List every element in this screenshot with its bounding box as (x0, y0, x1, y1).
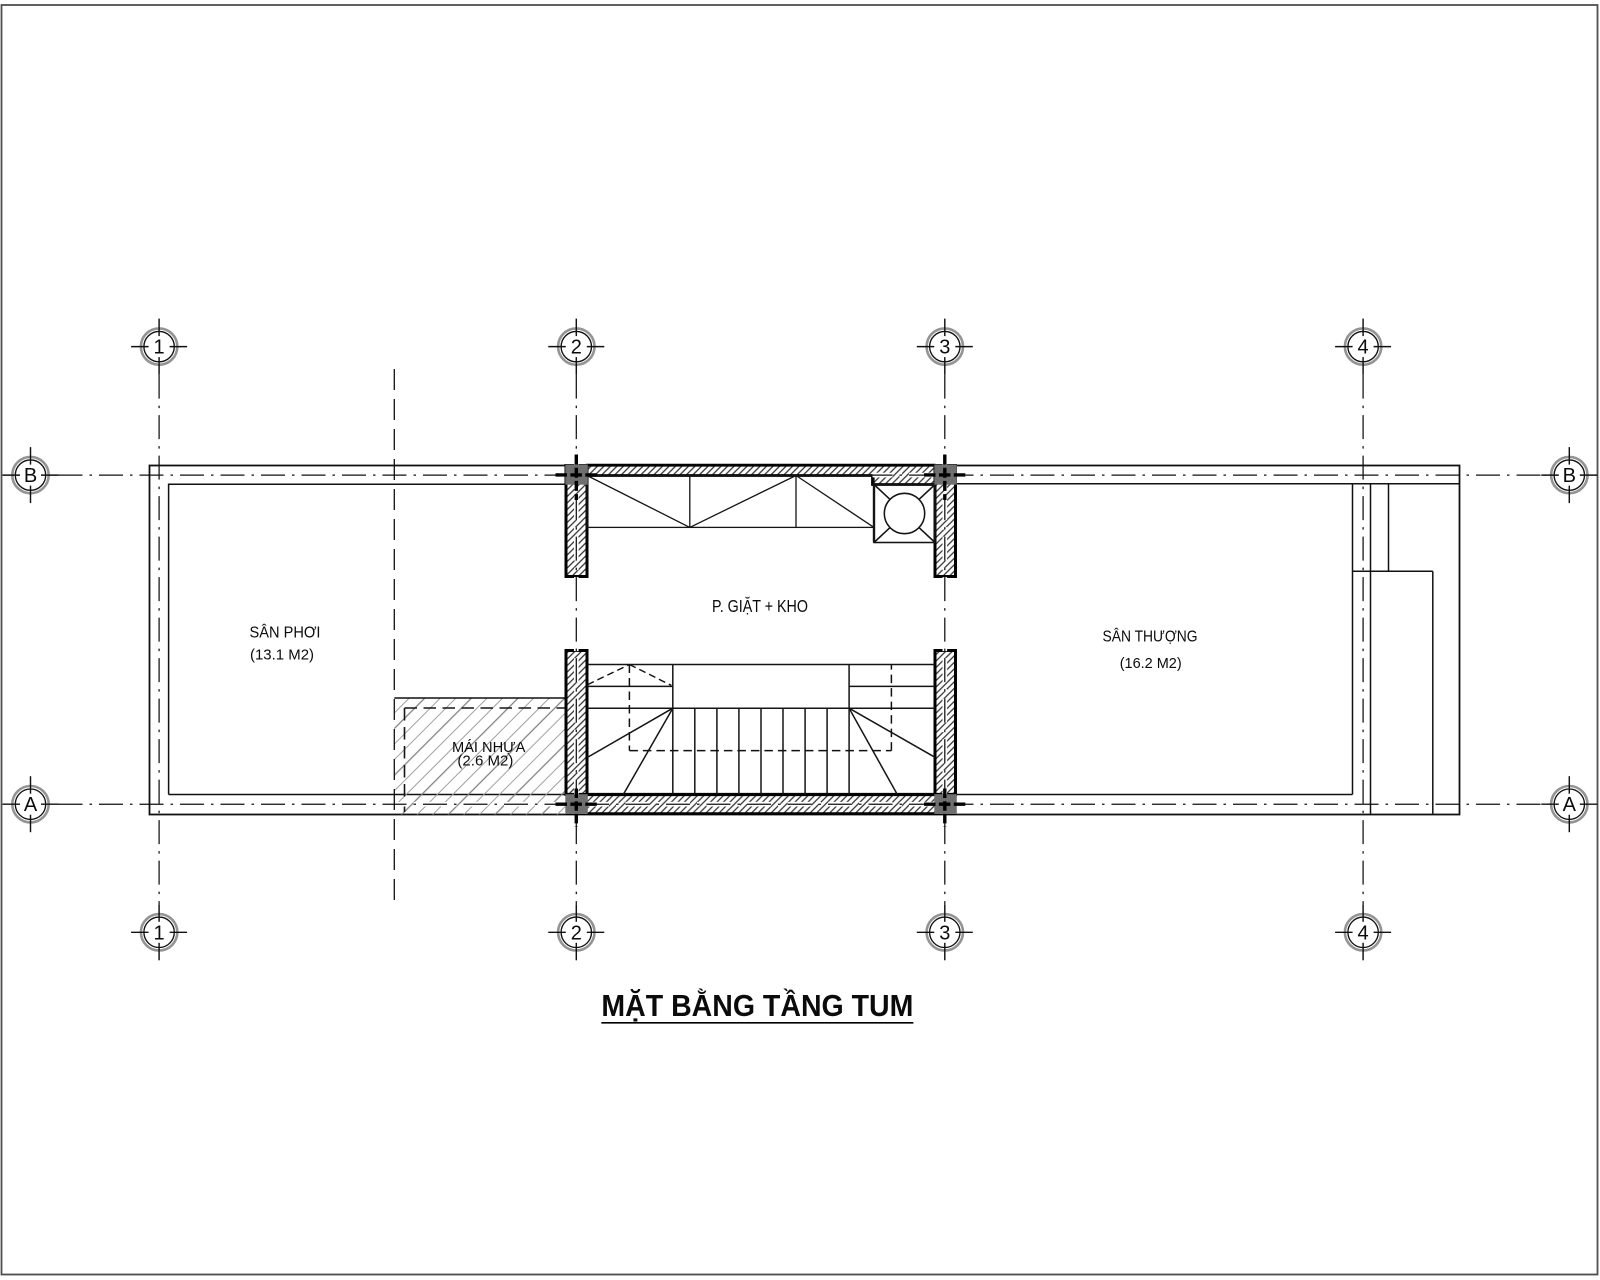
svg-text:3: 3 (939, 922, 950, 944)
svg-text:SÂN THƯỢNG: SÂN THƯỢNG (1103, 627, 1198, 646)
svg-text:1: 1 (154, 922, 165, 944)
svg-text:A: A (24, 794, 38, 816)
svg-text:B: B (24, 465, 37, 487)
svg-text:4: 4 (1358, 337, 1369, 359)
svg-text:(16.2 M2): (16.2 M2) (1120, 655, 1182, 672)
svg-text:(13.1 M2): (13.1 M2) (250, 647, 314, 664)
svg-text:A: A (1563, 794, 1577, 816)
svg-text:4: 4 (1358, 922, 1369, 944)
svg-text:3: 3 (939, 337, 950, 359)
svg-text:1: 1 (154, 337, 165, 359)
svg-text:SÂN PHƠI: SÂN PHƠI (250, 625, 321, 642)
svg-text:MẶT BẰNG TẦNG TUM: MẶT BẰNG TẦNG TUM (601, 988, 913, 1023)
svg-text:B: B (1563, 465, 1576, 487)
svg-text:2: 2 (571, 337, 582, 359)
svg-text:(2.6 M2): (2.6 M2) (457, 754, 513, 770)
svg-text:P. GIẶT + KHO: P. GIẶT + KHO (712, 596, 808, 616)
svg-text:2: 2 (571, 922, 582, 944)
